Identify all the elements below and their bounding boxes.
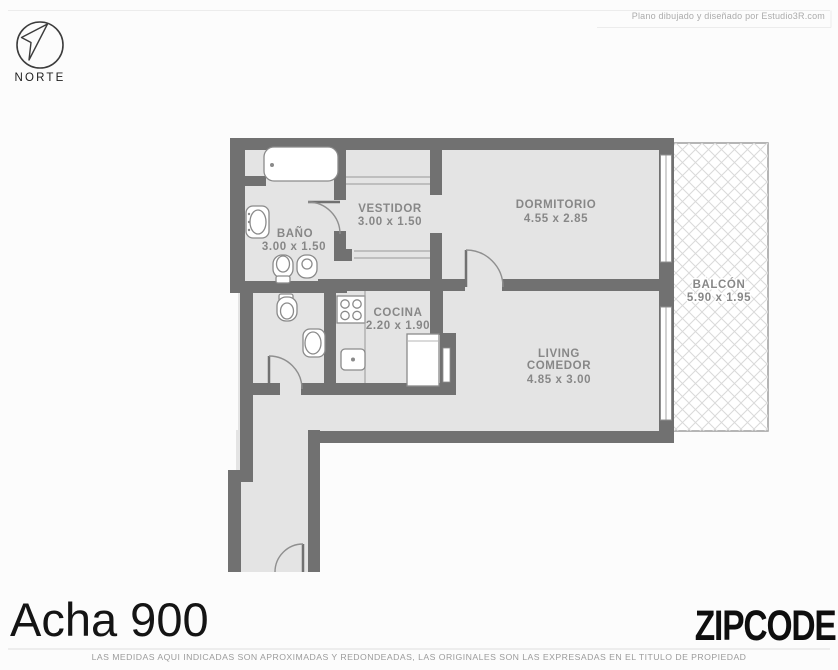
- wall-tub-stub: [245, 176, 266, 186]
- wall-toilette-stub-left: [250, 383, 280, 395]
- bano-sink-basin: [250, 210, 266, 234]
- room-dims-dormitorio: 4.55 x 2.85: [524, 213, 588, 225]
- compass-label: NORTE: [14, 72, 65, 84]
- room-label-living-2: COMEDOR: [527, 360, 591, 372]
- floor-plan-canvas: NORTE: [0, 0, 838, 670]
- bathtub: [264, 147, 338, 181]
- room-label-dormitorio: DORMITORIO: [516, 199, 597, 211]
- wall-toilette-stub-right: [301, 383, 325, 395]
- toilette-sink-basin: [305, 332, 321, 354]
- compass-circle-icon: [17, 22, 63, 68]
- fridge: [407, 334, 439, 386]
- kitchen-sink-drain: [351, 358, 355, 362]
- wall-toilette-cocina: [324, 291, 336, 395]
- kitchen-pass-door: [443, 348, 450, 382]
- room-dims-bano: 3.00 x 1.50: [262, 241, 326, 253]
- wall-vestidor-foot: [334, 249, 352, 261]
- wall-dorm-bottom: [502, 279, 674, 291]
- wall-left-upper: [230, 138, 245, 293]
- north-compass: [17, 22, 63, 68]
- bano-toilet-bowl: [277, 256, 290, 272]
- room-label-bano: BAÑO: [277, 227, 313, 240]
- room-label-cocina: COCINA: [374, 307, 423, 319]
- stove: [337, 296, 365, 323]
- room-dims-cocina: 2.20 x 1.90: [366, 320, 430, 332]
- toilette-toilet-bowl: [281, 303, 294, 319]
- wall-left-lower: [228, 470, 241, 572]
- wall-vestidor-dorm-top: [430, 138, 442, 195]
- room-label-living: LIVING: [538, 348, 580, 360]
- wall-corridor-right: [308, 430, 320, 572]
- designer-credit: Plano dibujado y diseñado por Estudio3R.…: [632, 11, 825, 21]
- north-arrow-icon: [22, 24, 48, 60]
- room-dims-vestidor: 3.00 x 1.50: [358, 216, 422, 228]
- bano-bidet-basin: [302, 259, 312, 269]
- bano-toilet-tank: [276, 276, 290, 283]
- wall-cocina-living-upper: [430, 279, 443, 335]
- page-title: Acha 900: [10, 595, 209, 644]
- room-dims-balcon: 5.90 x 1.95: [687, 292, 751, 304]
- bathtub-drain: [270, 163, 274, 167]
- floor-plan-page: { "page": { "credit": "Plano dibujado y …: [0, 0, 838, 670]
- measurements-disclaimer: LAS MEDIDAS AQUI INDICADAS SON APROXIMAD…: [0, 652, 838, 662]
- room-dims-living: 4.85 x 3.00: [527, 374, 591, 386]
- zipcode-logo: ZIPCODE: [695, 602, 836, 651]
- room-label-balcon: BALCÓN: [693, 278, 746, 291]
- wall-living-bottom: [308, 431, 674, 443]
- room-label-vestidor: VESTIDOR: [358, 203, 422, 215]
